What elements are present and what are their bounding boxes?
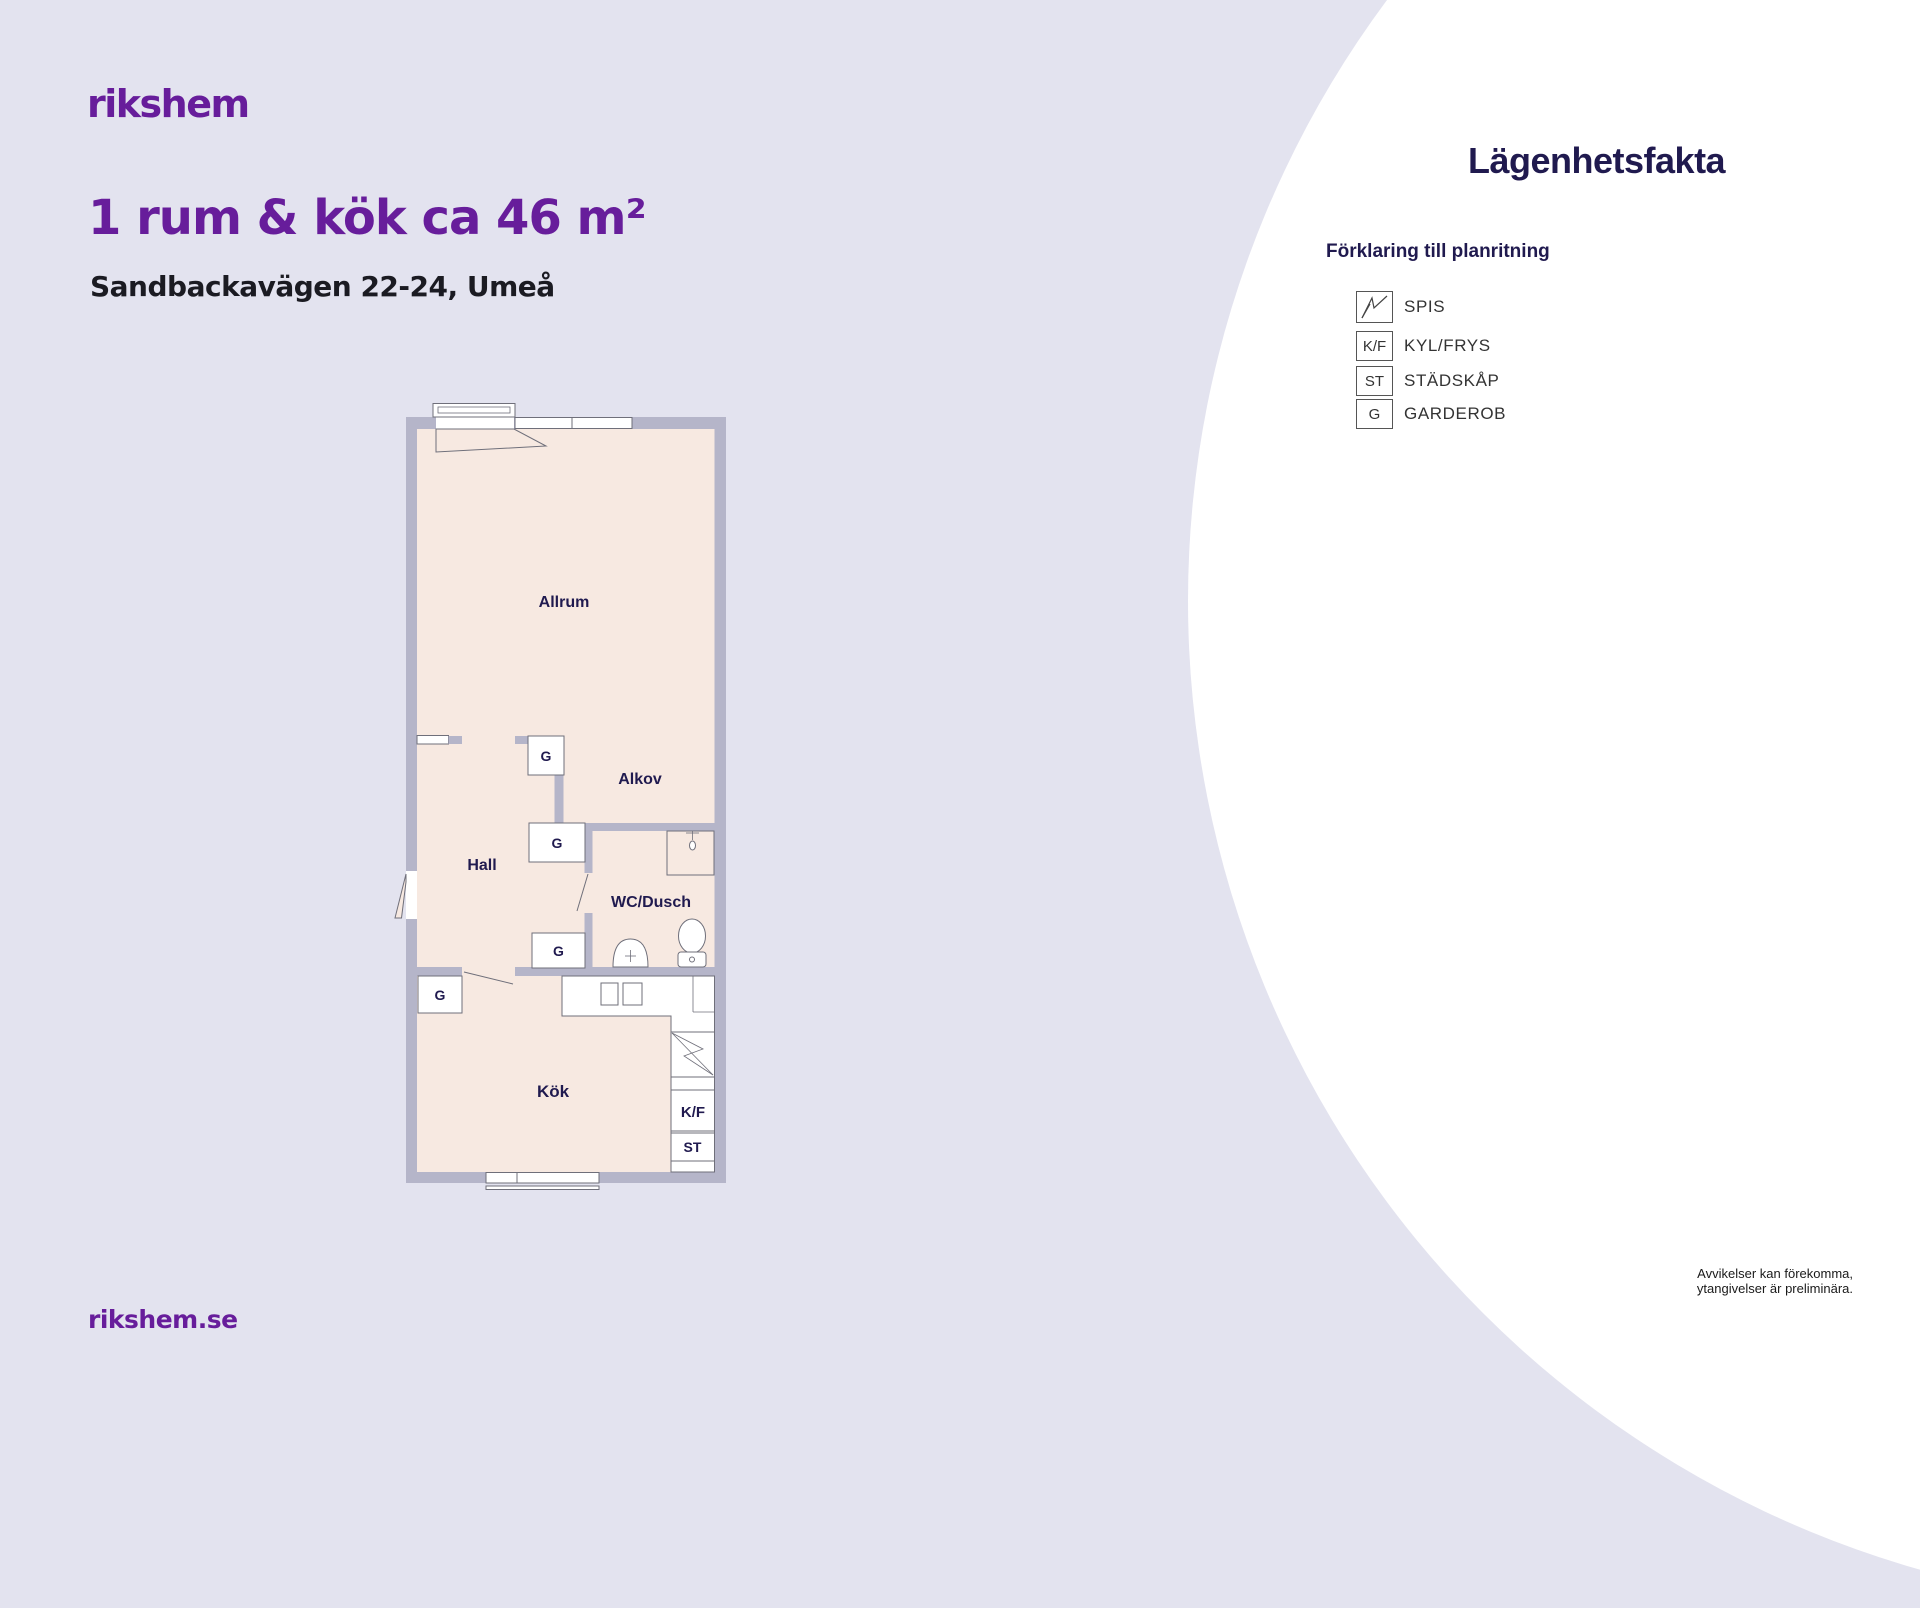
room-label-alcove: Alkov [618,771,662,788]
brand-logo: rikshem [87,82,249,126]
livingroom-window [515,418,632,429]
floorplan-legend: SPIS K/F KYL/FRYS ST STÄDSKÅP G GARDEROB [1356,291,1716,441]
disclaimer-line-1: Avvikelser kan förekomma, [1697,1266,1853,1281]
stove-legend-icon [1356,291,1393,323]
wardrobe-label: G [552,835,563,851]
legend-row-fridge-freezer: K/F KYL/FRYS [1356,331,1491,361]
listing-title: 1 rum & kök ca 46 m² [88,190,646,246]
shower-drain-icon [690,841,696,850]
fridge-freezer-legend-box: K/F [1356,331,1393,361]
brand-website: rikshem.se [88,1305,238,1334]
stove-zigzag-icon [1357,292,1392,322]
flyer-page: { "colors": { "bg": "#e3e3ef", "purple":… [0,0,1920,1357]
room-label-hall: Hall [467,857,496,874]
wardrobe-label: G [553,943,564,959]
room-label-livingroom: Allrum [539,594,590,611]
room-label-bathroom: WC/Dusch [611,894,691,911]
kitchen-window [486,1173,599,1190]
listing-address: Sandbackavägen 22-24, Umeå [90,270,555,303]
stove-box [671,1032,715,1077]
legend-heading: Förklaring till planritning [1326,241,1550,263]
legend-row-wardrobe: G GARDEROB [1356,399,1506,429]
cleaning-cabinet-label: ST [684,1139,702,1155]
legend-label: KYL/FRYS [1404,336,1491,356]
cleaning-cabinet-legend-box: ST [1356,366,1393,396]
toilet-icon [678,919,706,967]
floorplan-drawing: Allrum Alkov Hall WC/Dusch Kök G G G G K… [390,398,736,1198]
legend-row-stove: SPIS [1356,291,1445,323]
room-label-kitchen: Kök [537,1082,570,1101]
wardrobe-legend-box: G [1356,399,1393,429]
entry-door [395,871,417,919]
fridge-freezer-label: K/F [681,1104,705,1121]
legend-label: SPIS [1404,297,1445,317]
legend-label: STÄDSKÅP [1404,371,1500,391]
wardrobe-label: G [541,748,552,764]
disclaimer-line-2: ytangivelser är preliminära. [1697,1281,1853,1296]
wardrobe-label: G [435,987,446,1003]
disclaimer-note: Avvikelser kan förekomma, ytangivelser ä… [1697,1266,1853,1296]
background-circle [1188,0,1920,1608]
facts-panel-title: Lägenhetsfakta [1468,140,1725,182]
legend-label: GARDEROB [1404,404,1506,424]
legend-row-cleaning-cabinet: ST STÄDSKÅP [1356,366,1500,396]
